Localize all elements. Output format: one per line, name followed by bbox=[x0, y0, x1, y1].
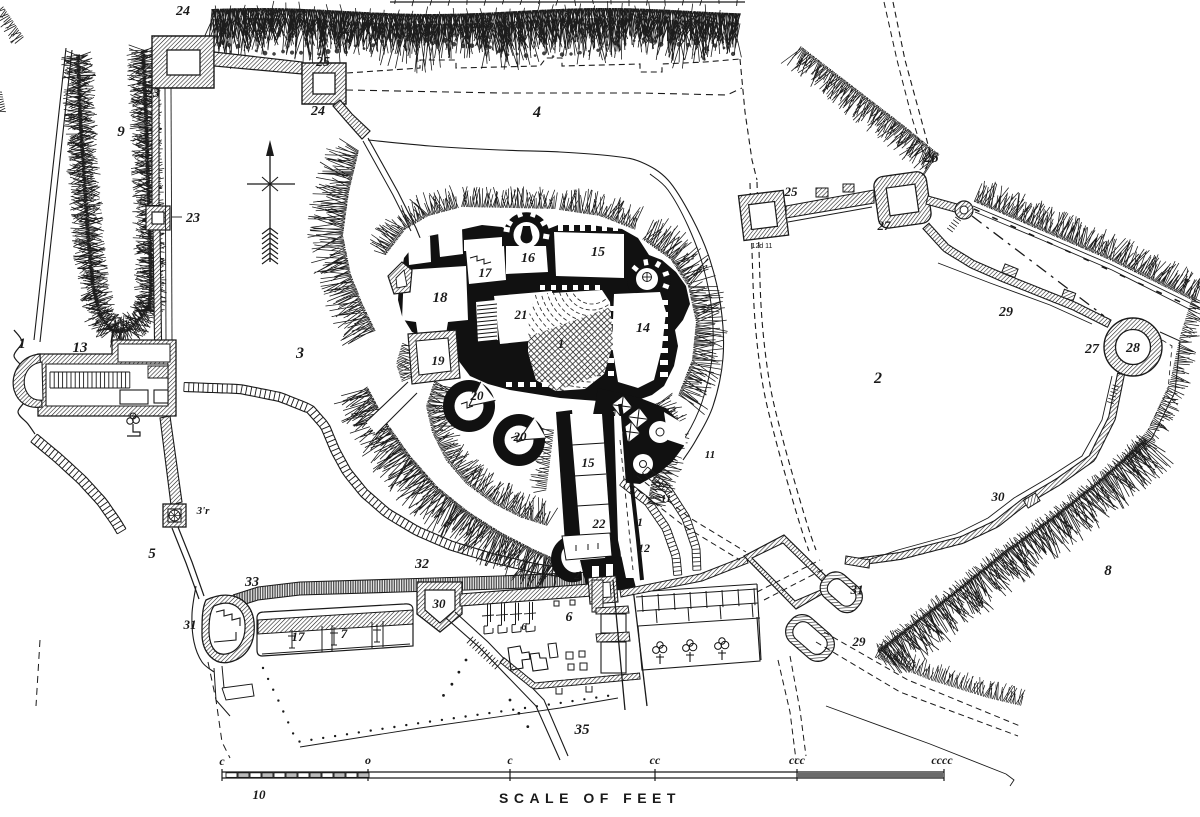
svg-text:12d 11: 12d 11 bbox=[752, 243, 773, 250]
svg-text:6: 6 bbox=[521, 621, 527, 633]
svg-text:16: 16 bbox=[521, 251, 535, 266]
svg-text:o: o bbox=[365, 753, 371, 767]
svg-text:1: 1 bbox=[558, 336, 565, 351]
svg-text:35: 35 bbox=[574, 722, 591, 738]
svg-text:4: 4 bbox=[532, 104, 541, 121]
svg-text:31: 31 bbox=[850, 582, 864, 597]
svg-text:15: 15 bbox=[591, 245, 605, 260]
svg-text:2: 2 bbox=[573, 570, 580, 582]
svg-text:30: 30 bbox=[991, 489, 1006, 504]
svg-text:29: 29 bbox=[998, 305, 1013, 320]
svg-text:25: 25 bbox=[315, 55, 330, 70]
svg-text:17: 17 bbox=[479, 265, 493, 280]
svg-text:14: 14 bbox=[636, 321, 650, 336]
svg-text:13: 13 bbox=[73, 340, 89, 356]
svg-text:9: 9 bbox=[117, 124, 125, 140]
svg-text:24: 24 bbox=[175, 4, 190, 19]
svg-text:11: 11 bbox=[661, 493, 671, 505]
svg-text:20: 20 bbox=[470, 388, 485, 403]
svg-text:5: 5 bbox=[148, 546, 156, 562]
svg-text:15: 15 bbox=[582, 455, 596, 470]
svg-text:8: 8 bbox=[1104, 563, 1112, 579]
svg-text:ccc: ccc bbox=[789, 753, 806, 767]
svg-text:c: c bbox=[219, 754, 225, 768]
svg-text:29: 29 bbox=[852, 634, 867, 649]
svg-text:30: 30 bbox=[432, 596, 447, 611]
svg-text:SCALE OF FEET: SCALE OF FEET bbox=[499, 790, 681, 806]
svg-text:12: 12 bbox=[638, 541, 650, 555]
svg-text:11: 11 bbox=[705, 449, 715, 461]
svg-text:c: c bbox=[507, 753, 513, 767]
svg-text:3: 3 bbox=[295, 345, 304, 362]
svg-text:23: 23 bbox=[185, 211, 200, 226]
svg-text:3'r: 3'r bbox=[196, 505, 211, 517]
svg-text:17: 17 bbox=[292, 629, 306, 644]
svg-text:6: 6 bbox=[566, 610, 573, 625]
svg-text:19: 19 bbox=[432, 353, 446, 368]
svg-text:26: 26 bbox=[923, 150, 940, 166]
svg-text:24: 24 bbox=[310, 104, 325, 119]
svg-text:22: 22 bbox=[592, 516, 607, 531]
svg-text:21: 21 bbox=[514, 307, 528, 322]
svg-text:31: 31 bbox=[183, 617, 197, 632]
svg-text:27: 27 bbox=[877, 218, 892, 233]
svg-text:28: 28 bbox=[1125, 341, 1140, 356]
svg-text:cc: cc bbox=[650, 753, 661, 767]
svg-text:18: 18 bbox=[433, 290, 449, 306]
svg-text:2: 2 bbox=[873, 370, 882, 387]
svg-text:1: 1 bbox=[18, 336, 26, 352]
svg-text:27: 27 bbox=[1084, 342, 1100, 357]
svg-text:32: 32 bbox=[414, 557, 429, 572]
svg-text:cccc: cccc bbox=[931, 753, 953, 767]
svg-text:25: 25 bbox=[784, 184, 799, 199]
svg-text:7: 7 bbox=[341, 626, 348, 641]
svg-text:10: 10 bbox=[253, 787, 267, 802]
svg-text:23: 23 bbox=[146, 85, 161, 100]
svg-text:20: 20 bbox=[513, 429, 528, 444]
svg-text:33: 33 bbox=[244, 575, 259, 590]
svg-text:1: 1 bbox=[637, 515, 643, 529]
